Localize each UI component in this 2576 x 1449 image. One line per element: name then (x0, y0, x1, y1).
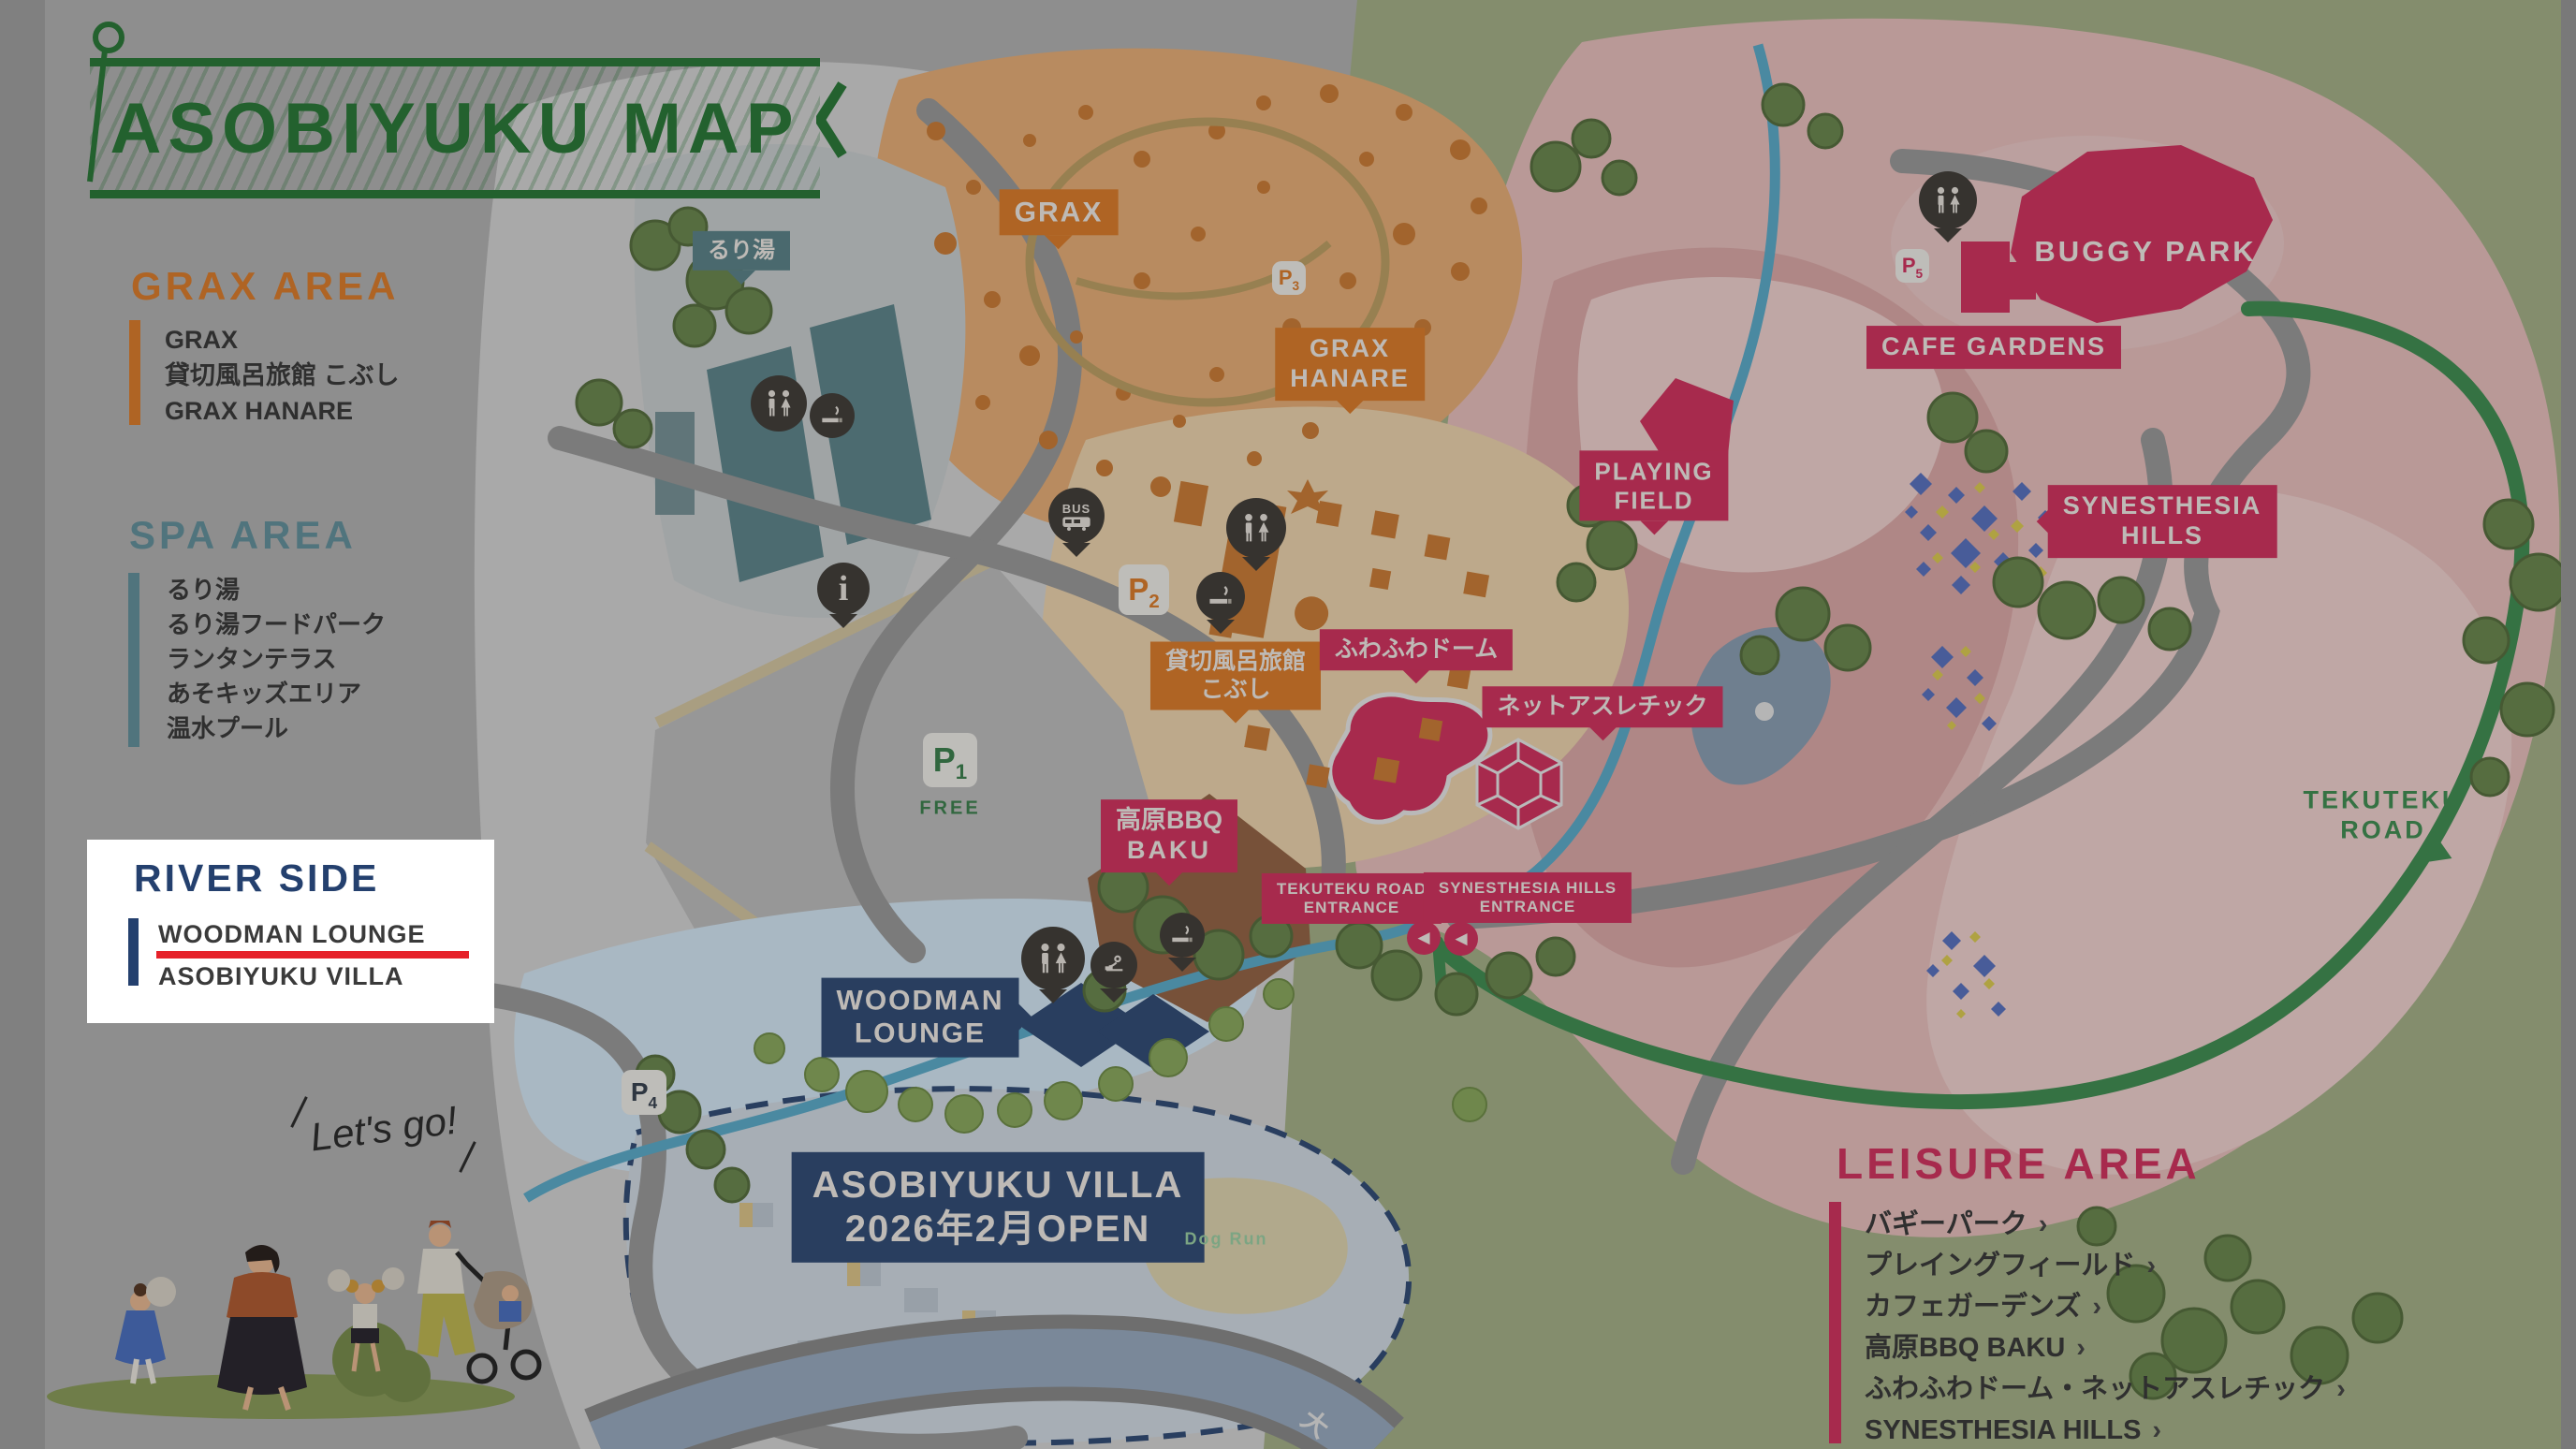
highlight-underline (156, 951, 469, 959)
asobiyuku-map-page: 大 (0, 0, 2576, 1449)
river-side-heading: RIVER SIDE (134, 856, 379, 900)
river-side-bar (128, 918, 139, 986)
dim-overlay (0, 0, 2576, 1449)
river-side-link-asobiyuku-villa[interactable]: ASOBIYUKU VILLA (158, 962, 404, 991)
river-side-link-woodman-lounge[interactable]: WOODMAN LOUNGE (158, 920, 425, 949)
river-side-highlight-box: RIVER SIDE WOODMAN LOUNGE ASOBIYUKU VILL… (87, 840, 494, 1023)
